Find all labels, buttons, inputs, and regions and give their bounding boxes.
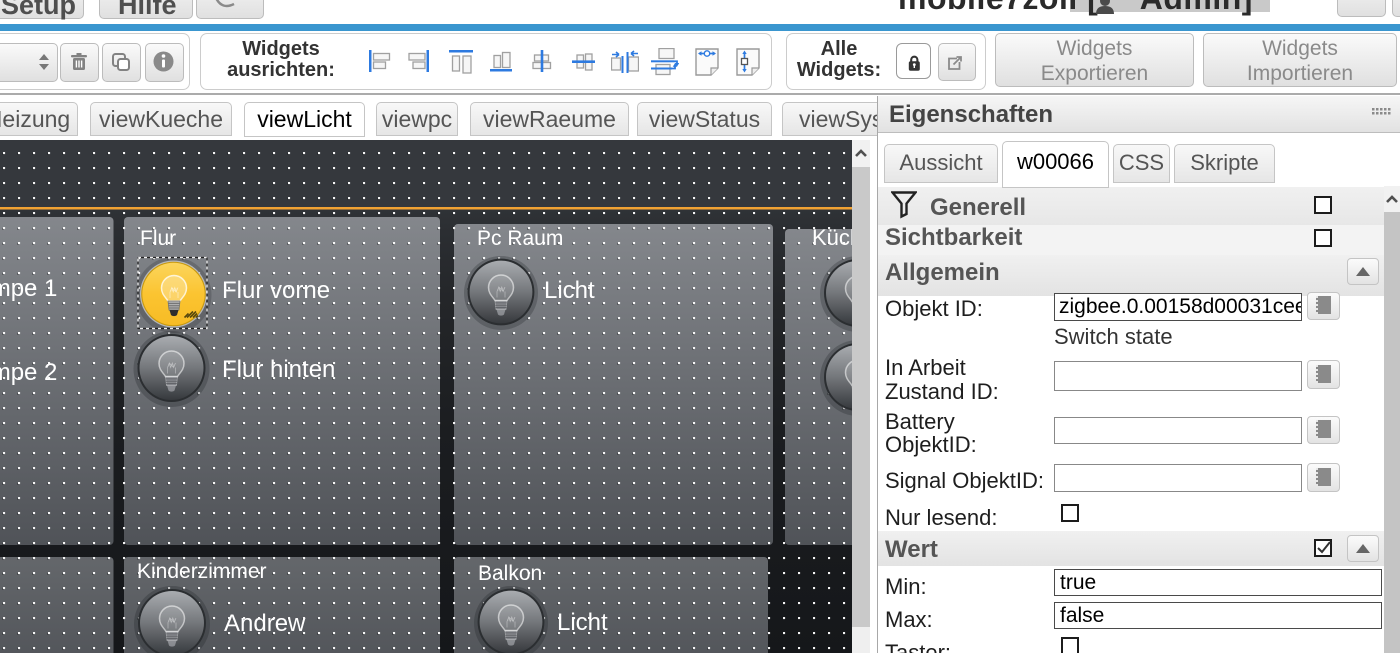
svg-text:Kinderzimmer: Kinderzimmer bbox=[137, 560, 267, 583]
svg-text:Licht: Licht bbox=[557, 609, 608, 636]
svg-text:Licht: Licht bbox=[544, 277, 595, 304]
svg-text:Pc Raum: Pc Raum bbox=[477, 227, 563, 250]
svg-text:Flur vorne: Flur vorne bbox=[222, 277, 330, 304]
svg-text:Flur hinten: Flur hinten bbox=[222, 356, 335, 383]
svg-text:Lampe 1: Lampe 1 bbox=[0, 275, 57, 302]
svg-text:Andrew: Andrew bbox=[224, 610, 306, 637]
svg-text:Flur: Flur bbox=[140, 227, 176, 250]
svg-text:Balkon: Balkon bbox=[478, 562, 542, 585]
svg-text:Küche: Küche bbox=[812, 225, 852, 250]
svg-text:Lampe 2: Lampe 2 bbox=[0, 359, 57, 386]
